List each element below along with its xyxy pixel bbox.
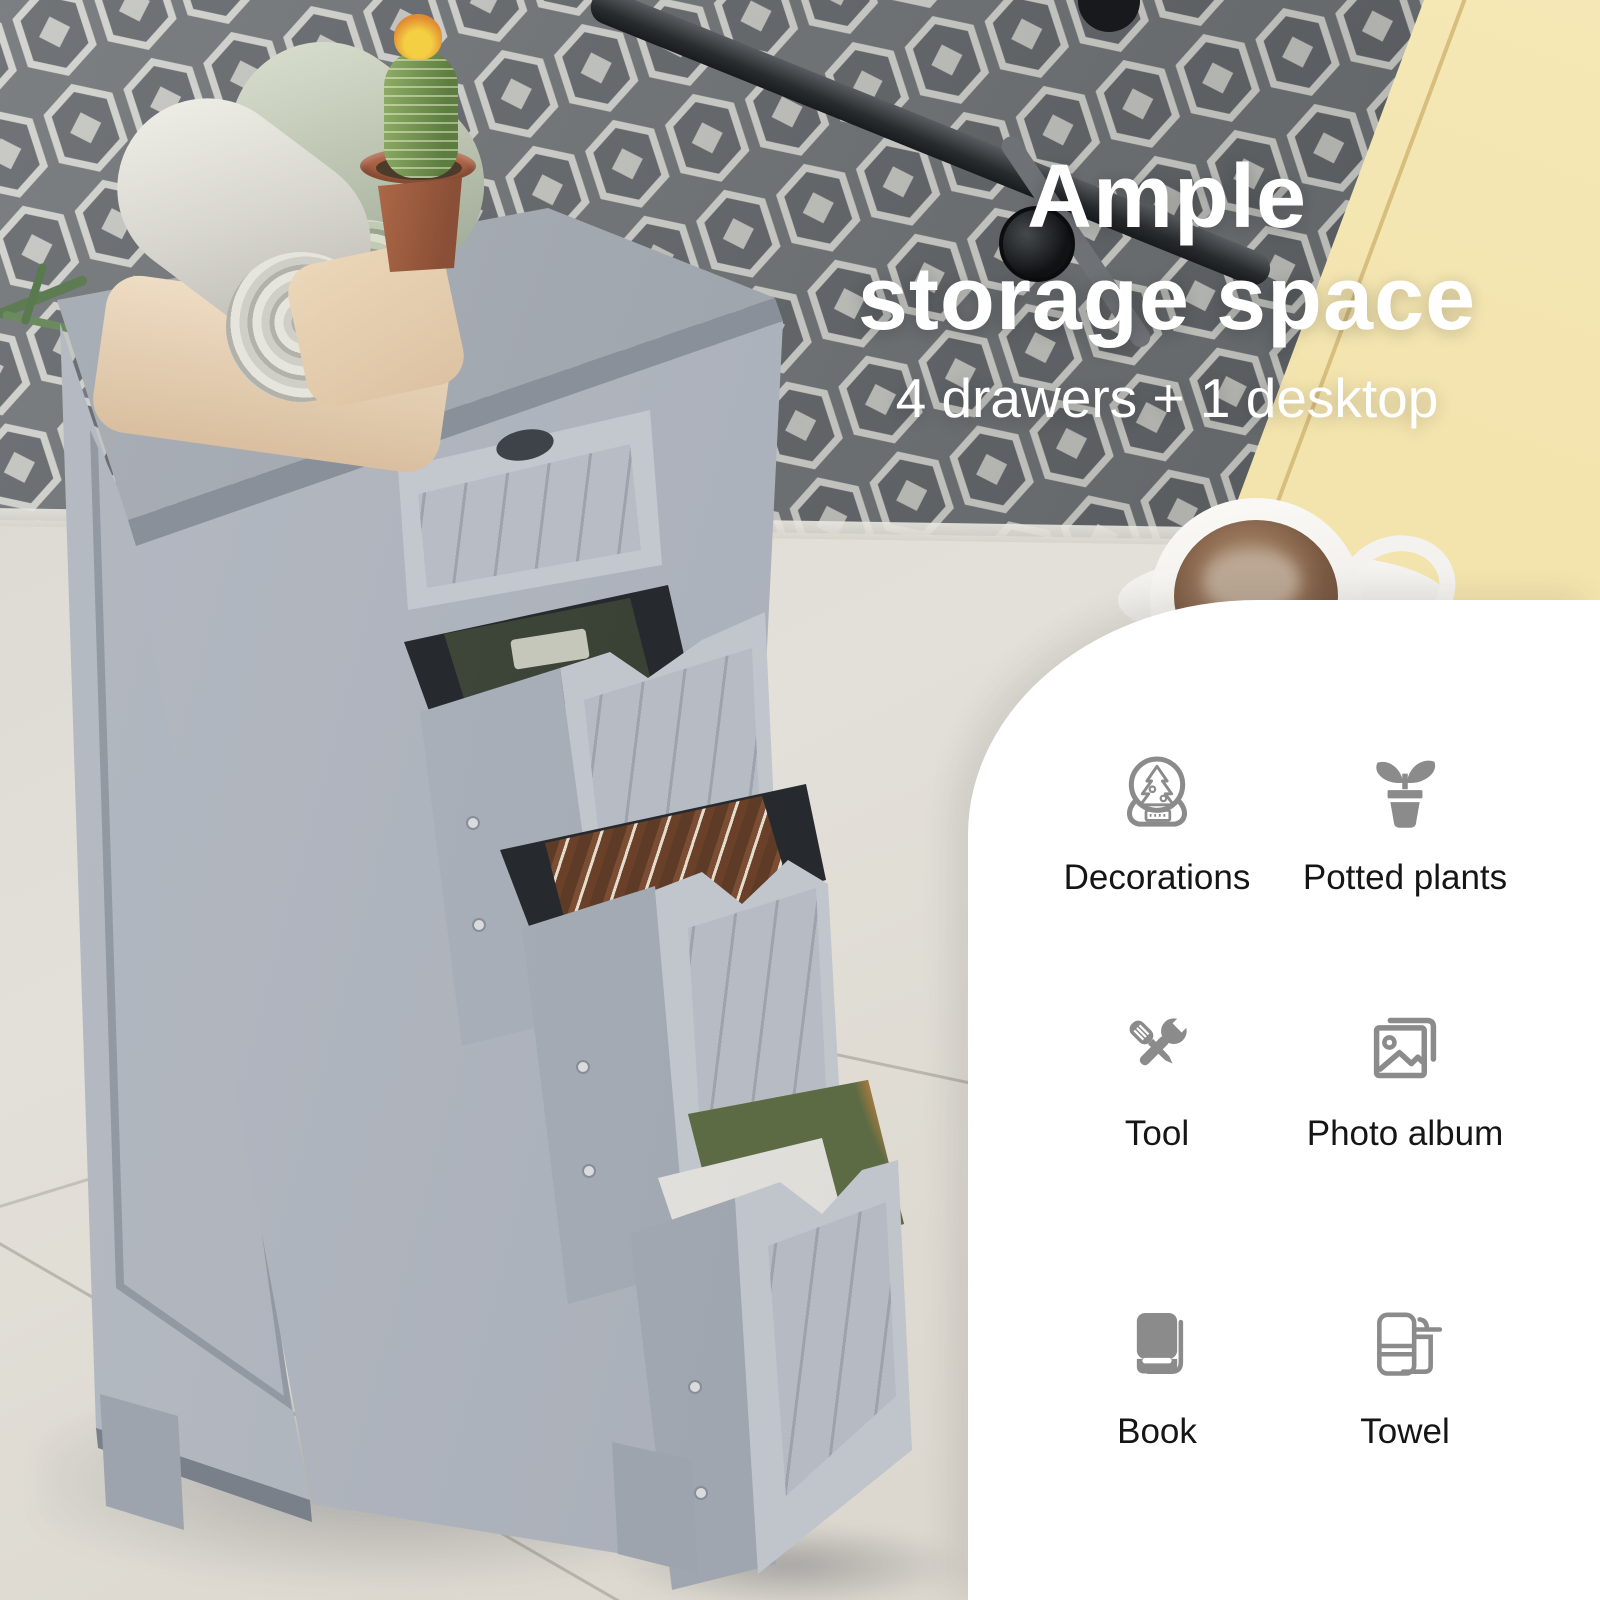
feature-towel: Towel: [1250, 1302, 1560, 1452]
snow-globe-icon: [1113, 748, 1201, 836]
potted-plant-icon: [1361, 748, 1449, 836]
feature-label: Potted plants: [1303, 858, 1507, 898]
towel-icon: [1361, 1302, 1449, 1390]
screw: [694, 1486, 708, 1500]
feature-label: Tool: [1125, 1114, 1189, 1154]
screw: [582, 1164, 596, 1178]
feature-potted-plants: Potted plants: [1250, 748, 1560, 898]
headline-subtitle: 4 drawers + 1 desktop: [762, 366, 1572, 430]
screw: [466, 816, 480, 830]
product-marketing-image: Ample storage space 4 drawers + 1 deskto…: [0, 0, 1600, 1600]
cactus: [384, 50, 458, 178]
feature-label: Decorations: [1064, 858, 1251, 898]
screw: [472, 918, 486, 932]
feature-label: Photo album: [1307, 1114, 1504, 1154]
feature-label: Book: [1117, 1412, 1197, 1452]
book-icon: [1113, 1302, 1201, 1390]
feature-photo-album: Photo album: [1250, 1004, 1560, 1154]
photo-album-icon: [1361, 1004, 1449, 1092]
feature-label: Towel: [1360, 1412, 1449, 1452]
cactus-flower: [394, 14, 442, 60]
headline-line-2: storage space: [762, 248, 1572, 350]
screw: [688, 1380, 702, 1394]
headline: Ample storage space 4 drawers + 1 deskto…: [762, 146, 1572, 430]
headline-line-1: Ample: [762, 146, 1572, 248]
tool-icon: [1113, 1004, 1201, 1092]
screw: [576, 1060, 590, 1074]
